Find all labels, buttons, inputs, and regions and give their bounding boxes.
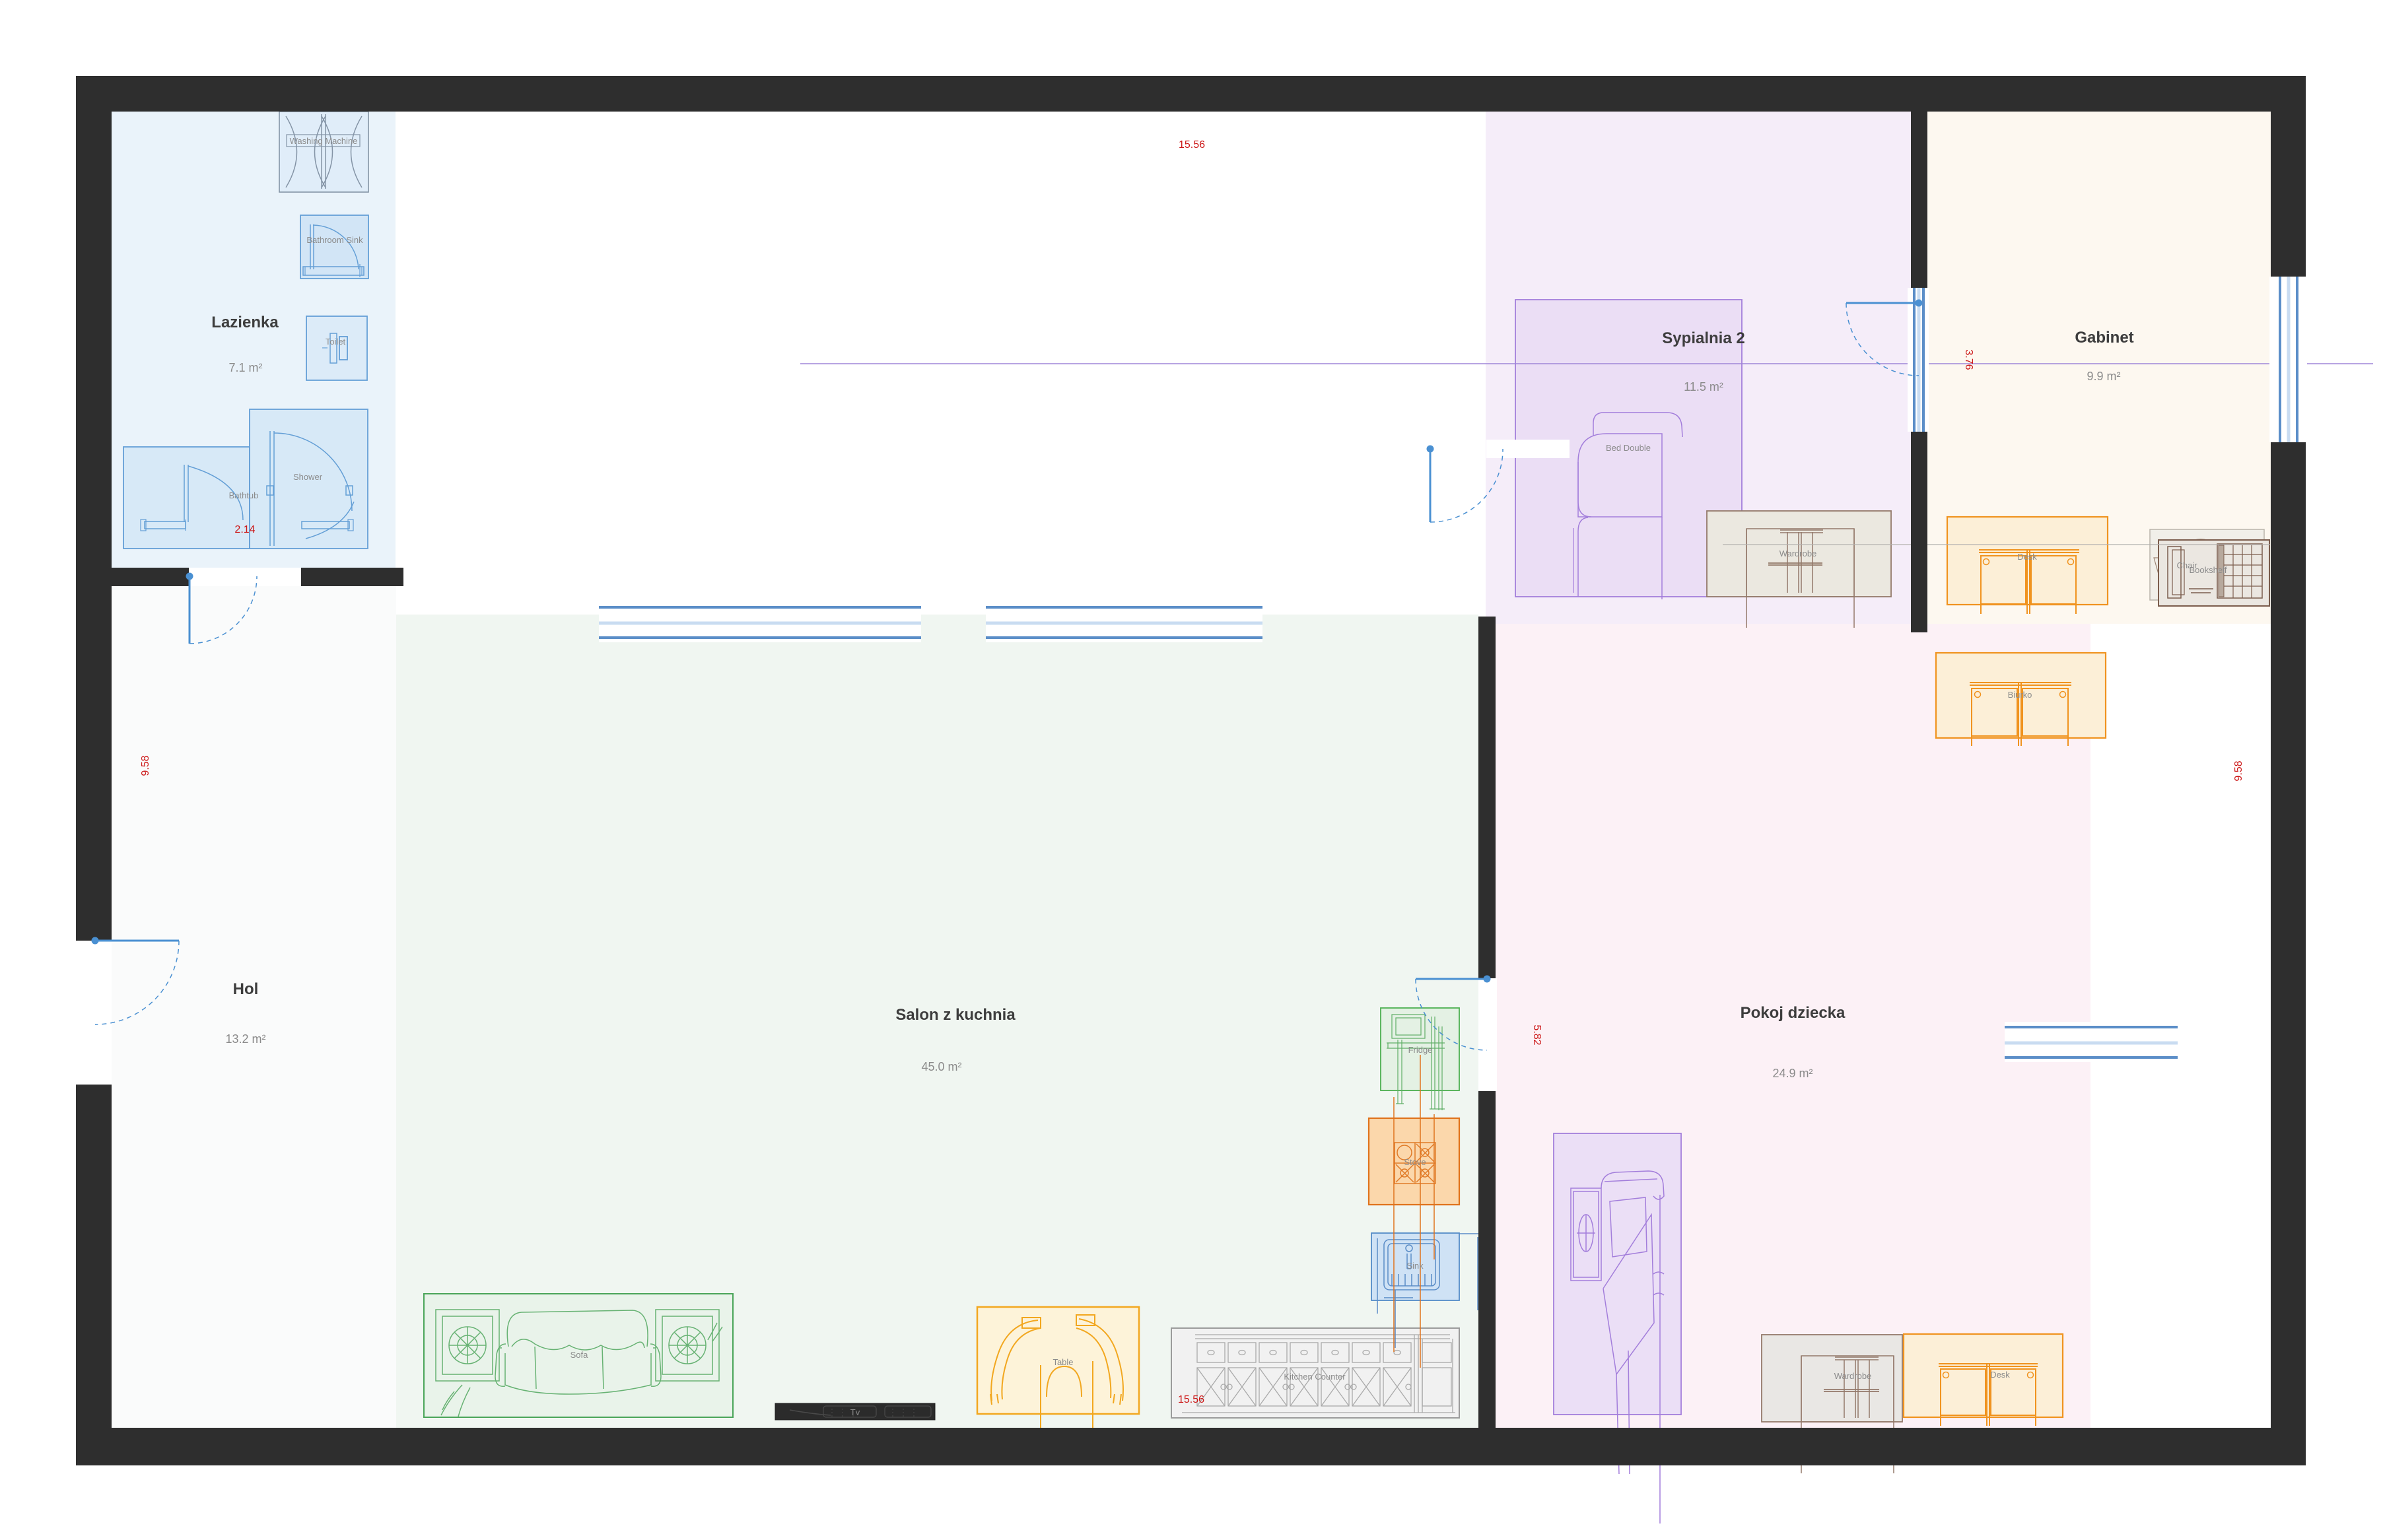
svg-text:Desk: Desk — [2017, 552, 2037, 562]
svg-text:Fridge: Fridge — [1408, 1045, 1433, 1055]
svg-text:45.0 m²: 45.0 m² — [921, 1060, 961, 1073]
svg-text:Sypialnia 2: Sypialnia 2 — [1662, 329, 1744, 347]
svg-text:Bathroom Sink: Bathroom Sink — [306, 235, 363, 245]
svg-text:Lazienka: Lazienka — [211, 314, 279, 331]
svg-text:Sofa: Sofa — [570, 1350, 589, 1360]
svg-text:Bathtub: Bathtub — [229, 490, 259, 500]
svg-text:Desk: Desk — [1990, 1370, 2010, 1380]
svg-text:Salon z kuchnia: Salon z kuchnia — [895, 1006, 1016, 1024]
svg-text:3.76: 3.76 — [1963, 349, 1974, 370]
svg-text:Kitchen Counter: Kitchen Counter — [1284, 1372, 1346, 1382]
svg-text:Wardrobe: Wardrobe — [1779, 549, 1817, 558]
svg-text:9.58: 9.58 — [140, 755, 151, 776]
svg-text:Sink: Sink — [1406, 1261, 1424, 1271]
svg-text:Table: Table — [1053, 1357, 1073, 1367]
svg-text:Bed Double: Bed Double — [1606, 443, 1651, 453]
svg-text:9.9 m²: 9.9 m² — [2087, 370, 2120, 383]
svg-text:Biurko: Biurko — [2008, 690, 2032, 700]
svg-text:9.58: 9.58 — [2233, 760, 2244, 781]
svg-text:Hol: Hol — [233, 980, 259, 998]
svg-text:Tv: Tv — [850, 1407, 860, 1417]
svg-text:7.1 m²: 7.1 m² — [228, 361, 262, 374]
svg-text:15.56: 15.56 — [1179, 139, 1205, 151]
svg-text:11.5 m²: 11.5 m² — [1684, 380, 1723, 393]
svg-text:Bookshelf: Bookshelf — [2189, 565, 2227, 575]
svg-text:Wardrobe: Wardrobe — [1834, 1371, 1872, 1381]
svg-text:Gabinet: Gabinet — [2075, 329, 2133, 347]
svg-text:13.2 m²: 13.2 m² — [225, 1032, 265, 1046]
svg-text:24.9 m²: 24.9 m² — [1772, 1067, 1813, 1080]
svg-text:Shower: Shower — [293, 472, 323, 482]
svg-text:Pokoj dziecka: Pokoj dziecka — [1741, 1004, 1846, 1022]
svg-text:5.82: 5.82 — [1531, 1024, 1542, 1045]
svg-text:2.14: 2.14 — [234, 524, 255, 535]
svg-text:Toilet: Toilet — [326, 337, 346, 347]
svg-text:Stove: Stove — [1404, 1157, 1426, 1167]
svg-text:15.56: 15.56 — [1178, 1394, 1204, 1405]
svg-text:Washing Machine: Washing Machine — [290, 136, 358, 146]
